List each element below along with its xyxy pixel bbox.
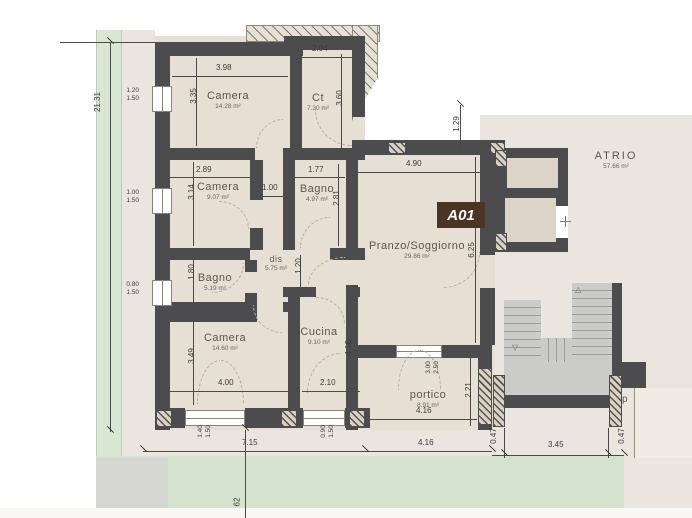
neighbor-room [634,388,692,458]
dim-047-left: 0.47 [490,428,498,444]
pillar-hatch [495,233,507,251]
wall [155,214,170,280]
room-label-camera3: Camera 14.60 m² [173,332,277,352]
wall [288,297,300,408]
neighbor-wall [620,362,646,388]
pillar-hatch [349,410,365,427]
dim-line [60,42,155,43]
pillar-hatch [609,375,622,427]
dim-289: 2.89 [196,166,212,174]
dim-2131: 21.31 [94,92,102,112]
elevator-door [556,206,568,238]
dim-210: 2.10 [320,379,336,387]
room-label-portico: portico 8.91 m² [386,389,470,409]
window [152,86,172,112]
dim-715: 7.15 [242,439,258,447]
dim-129: 1.29 [453,116,461,132]
dim-416-bottom: 4.16 [418,439,434,447]
stair-flight-right [572,283,612,358]
door-symbol [565,216,566,227]
pillar-hatch [388,142,406,154]
floor-plan: ▽ △ p [0,0,692,518]
wall [155,248,250,260]
pillar-hatch [478,368,492,425]
dim-204: 2.04 [312,45,328,53]
stair-winders [541,338,572,362]
dim-line [193,162,194,246]
wall [250,228,263,250]
stair-landing [504,358,612,395]
dim-line [365,419,477,420]
window-size-label: 0.801.50 [121,281,139,297]
window-size-label: 0.901.50 [320,425,336,443]
gray-patch [96,458,168,508]
dim-line [143,451,492,452]
dim-047-right: 0.47 [618,428,626,444]
stair-arrow-up-icon: △ [575,286,581,294]
wall [480,140,495,255]
wall [480,288,495,345]
wall [155,148,255,160]
dim-398: 3.98 [216,64,232,72]
dim-345: 3.45 [548,441,564,449]
room-label-soggiorno: Pranzo/Soggiorno 29.86 m² [352,240,482,260]
dim-line [302,391,360,392]
window [303,410,345,426]
pillar-hatch [493,375,505,427]
dim-177: 1.77 [308,166,324,174]
dim-100: 1.00 [262,184,278,192]
window [152,188,172,214]
dim-line [170,391,288,392]
window-size-label: 1.401.50 [197,425,213,443]
stair-arrow-down-icon: ▽ [512,344,518,352]
wall [504,395,612,408]
room-label-atrio: ATRIO 57.66 m² [578,150,654,170]
window [396,345,442,358]
room-label-bagno2: Bagno 5.19 m² [173,272,257,292]
pillar-hatch [281,410,297,427]
dim-line [358,172,480,173]
unit-badge: A01 [437,202,485,228]
wall [155,42,303,56]
dim-line [172,76,288,77]
wall [442,345,492,358]
footer-band [0,508,692,518]
wall [352,36,365,117]
dim-line [170,177,250,178]
dim-line [492,455,624,456]
neighbor-room-label: p [622,395,628,405]
window [152,280,172,306]
stair-core-cell [507,158,558,188]
window-size-label: 1.201.50 [121,87,139,103]
room-label-bagno1: Bagno 4.97 m² [291,183,343,203]
dim-400: 4.00 [218,379,234,387]
dim-490: 4.90 [406,160,422,168]
dim-line [110,42,111,432]
pillar-hatch [156,410,172,427]
dim-line [300,57,352,58]
window-size-label: 3.002.50 [425,361,441,379]
window-size-label: 1.001.50 [121,189,139,205]
dim-62: 62 [233,498,241,507]
wall [155,42,170,86]
lawn [96,456,624,508]
room-label-cucina: Cucina 9.10 m² [290,326,348,346]
room-label-camera1: Camera 14.28 m² [176,90,280,110]
elevator-cell [505,198,556,242]
pillar-hatch [495,150,507,167]
room-label-ct: Ct 7.30 m² [294,92,342,112]
room-label-dis: dis 5.75 m² [252,254,300,272]
wall [283,287,316,297]
room-label-camera2: Camera 9.07 m² [172,181,264,201]
stair-flight-left [504,300,541,358]
wall [346,345,396,358]
wall [283,160,295,250]
window [185,410,245,426]
